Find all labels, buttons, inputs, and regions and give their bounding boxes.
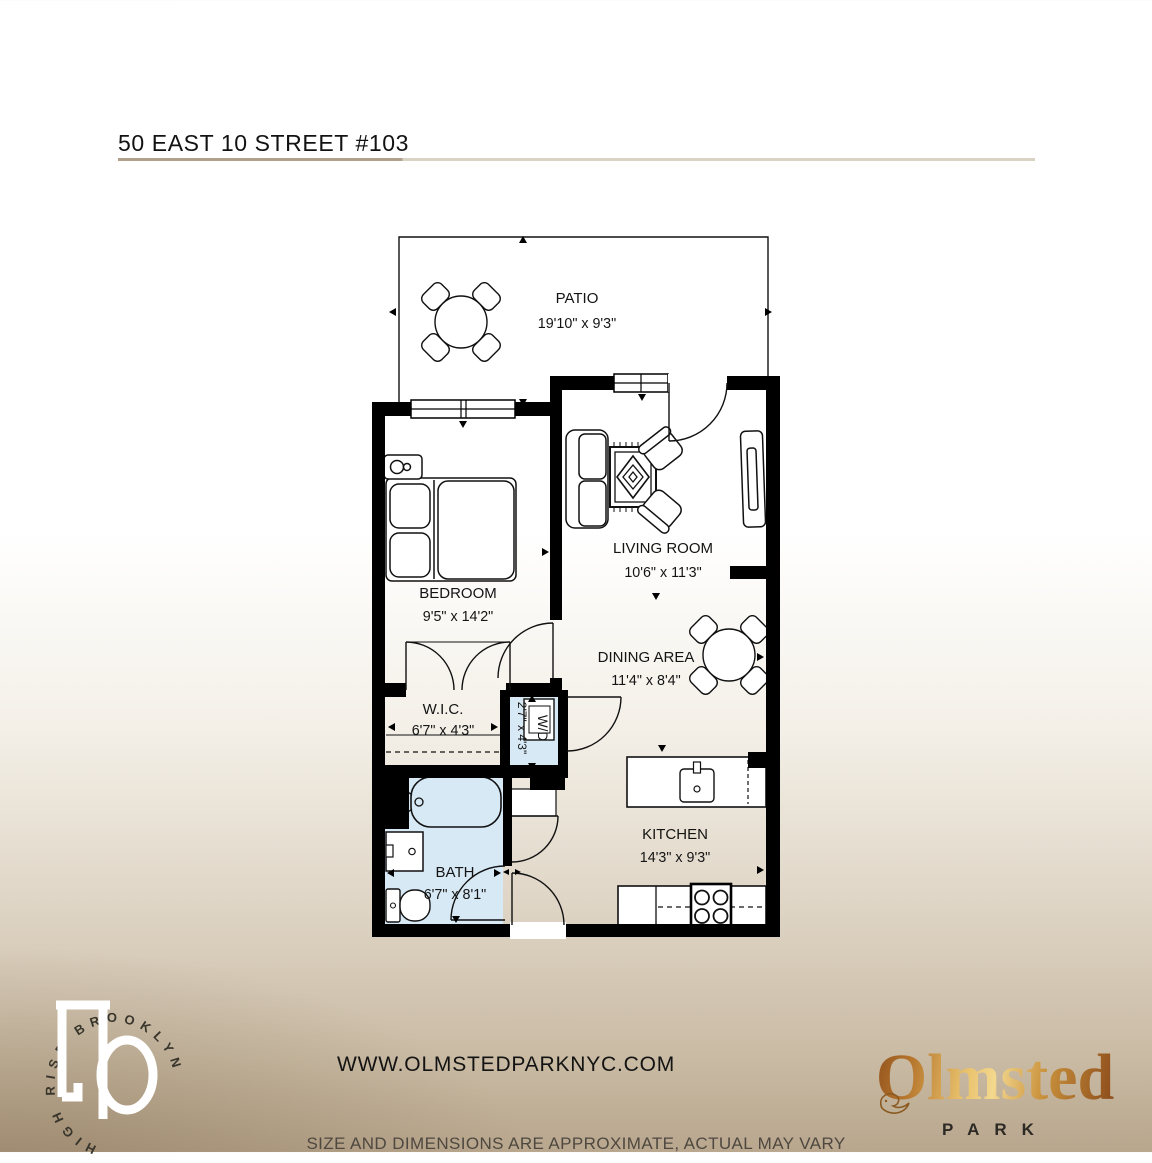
patio-table — [419, 280, 503, 364]
room-dims-wic: 6'7" x 4'3" — [412, 723, 475, 739]
kitchen-counter — [618, 884, 766, 929]
hall-door — [567, 697, 621, 751]
title-underline — [118, 158, 1035, 161]
room-dims-bath: 6'7" x 8'1" — [424, 887, 487, 903]
closet-shelf — [510, 789, 556, 816]
room-label-living: LIVING ROOM — [613, 540, 713, 557]
room-label-wd: W/D — [535, 715, 550, 741]
room-dims-dining: 11'4" x 8'4" — [611, 673, 680, 689]
kitchen-island — [627, 757, 766, 807]
brand-subtitle: PARK — [845, 1120, 1131, 1140]
room-label-dining: DINING AREA — [598, 649, 695, 666]
wic-french-doors — [406, 642, 510, 690]
tv-console — [740, 431, 765, 528]
armchairs — [636, 425, 687, 535]
room-label-wic: W.I.C. — [423, 701, 464, 718]
stove — [691, 884, 731, 929]
room-dims-living: 10'6" x 11'3" — [624, 565, 701, 581]
floor-plan: PATIO 19'10" x 9'3" BEDROOM 9'5" x 14'2"… — [340, 225, 800, 955]
room-dims-wd: 2'7" x 4'3" — [515, 702, 529, 754]
page-title: 50 EAST 10 STREET #103 — [118, 130, 409, 157]
room-label-bath: BATH — [436, 864, 475, 881]
room-dims-bedroom: 9'5" x 14'2" — [423, 609, 493, 625]
sofa — [566, 430, 608, 528]
room-label-kitchen: KITCHEN — [642, 826, 708, 843]
room-label-patio: PATIO — [556, 290, 599, 307]
bedroom-door — [498, 623, 553, 678]
high-rise-brooklyn-logo: HIGH RISE BROOKLYN — [28, 993, 198, 1163]
nightstand — [384, 455, 422, 479]
vanity — [386, 832, 423, 871]
olmsted-park-logo: Olmsted PARK — [845, 1042, 1145, 1152]
closet-door — [512, 816, 558, 862]
room-dims-kitchen: 14'3" x 9'3" — [640, 850, 710, 866]
entry-door — [512, 873, 564, 925]
bird-icon — [873, 1086, 913, 1120]
room-label-bedroom: BEDROOM — [419, 585, 497, 602]
room-dims-patio: 19'10" x 9'3" — [538, 316, 616, 332]
bed — [386, 478, 516, 581]
